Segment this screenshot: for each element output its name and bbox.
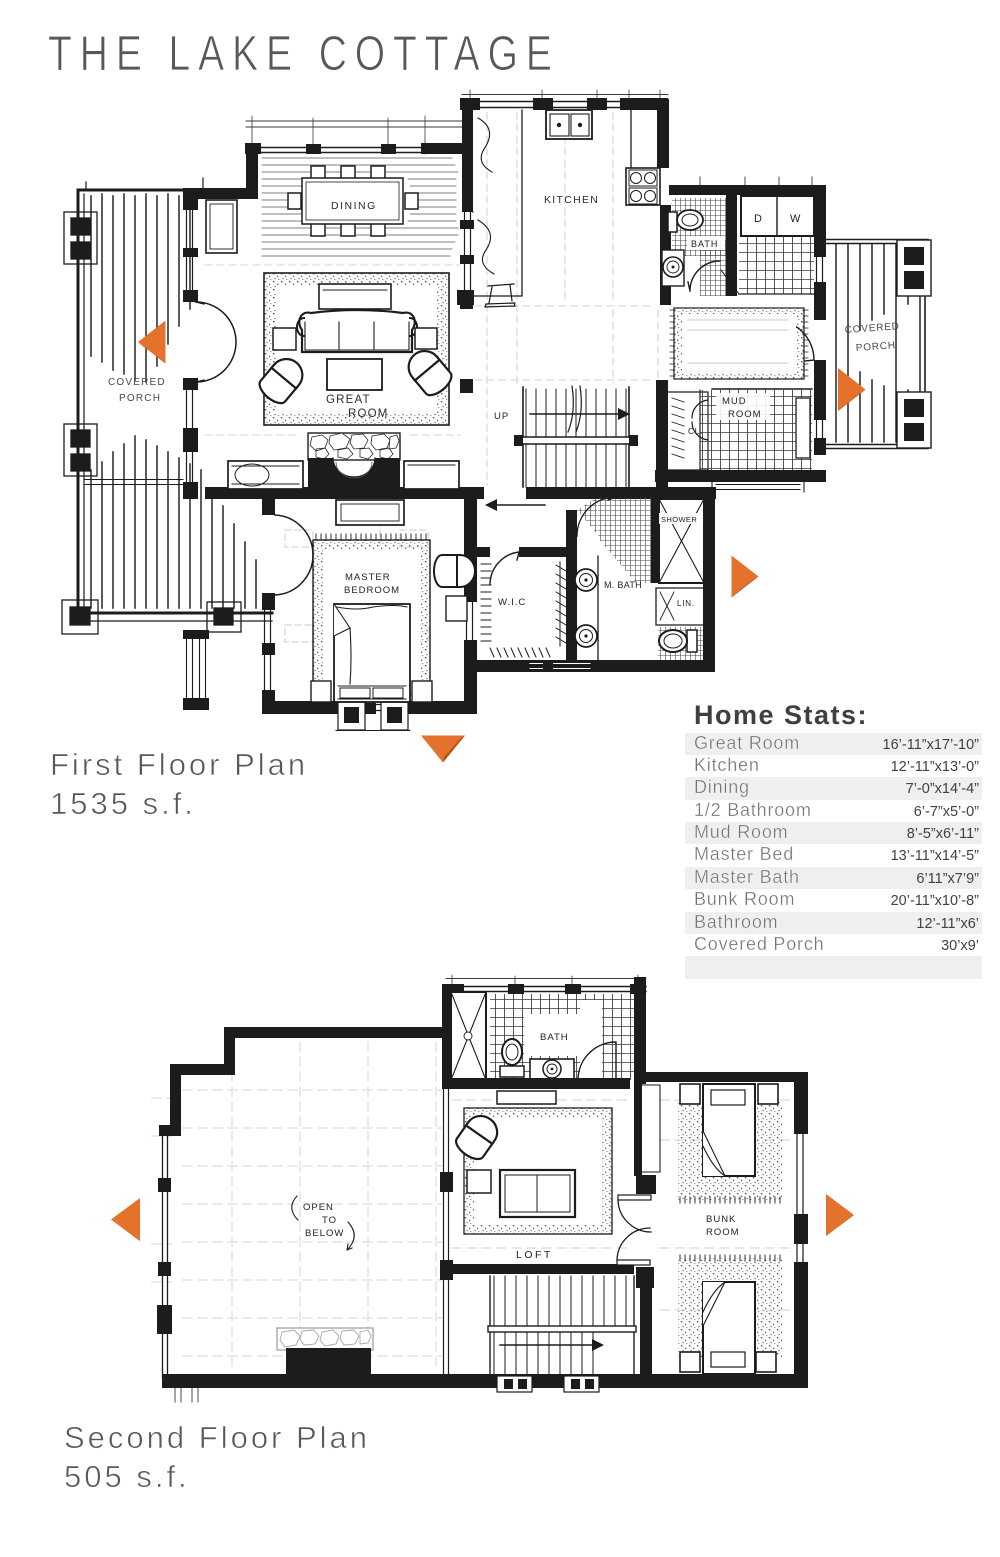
svg-text:OPEN: OPEN [303, 1202, 334, 1213]
svg-text:PORCH: PORCH [855, 340, 896, 354]
svg-text:TO: TO [322, 1215, 337, 1226]
svg-text:COVERED: COVERED [844, 321, 900, 336]
svg-text:MUD: MUD [722, 396, 747, 407]
svg-text:BELOW: BELOW [305, 1228, 344, 1239]
svg-text:ROOM: ROOM [348, 408, 389, 420]
svg-text:D: D [754, 213, 762, 225]
svg-text:W: W [790, 213, 801, 225]
svg-text:KITCHEN: KITCHEN [544, 194, 599, 206]
svg-text:BEDROOM: BEDROOM [344, 585, 400, 596]
svg-text:UP: UP [494, 411, 509, 422]
svg-text:M. BATH: M. BATH [604, 580, 642, 590]
svg-text:SHOWER: SHOWER [661, 515, 697, 524]
svg-text:BATH: BATH [691, 239, 718, 249]
svg-text:LIN.: LIN. [677, 599, 695, 608]
svg-text:DINING: DINING [331, 200, 377, 212]
svg-text:W.I.C: W.I.C [498, 597, 526, 608]
svg-text:MASTER: MASTER [345, 572, 391, 583]
svg-text:BATH: BATH [540, 1032, 569, 1043]
svg-text:PORCH: PORCH [119, 393, 161, 404]
svg-text:LOFT: LOFT [516, 1249, 553, 1261]
svg-text:GREAT: GREAT [326, 394, 371, 406]
svg-text:ROOM: ROOM [706, 1227, 740, 1238]
svg-text:BUNK: BUNK [706, 1214, 736, 1225]
svg-text:ROOM: ROOM [728, 409, 762, 420]
svg-text:COVERED: COVERED [108, 377, 166, 388]
